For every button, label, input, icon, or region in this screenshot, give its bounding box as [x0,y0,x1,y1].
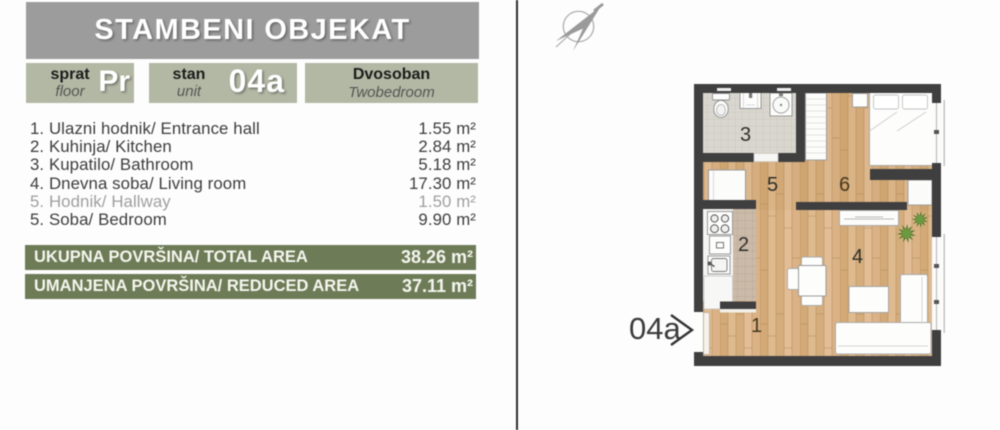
svg-text:6: 6 [839,174,850,196]
svg-text:4: 4 [852,246,863,268]
svg-text:5: 5 [767,174,778,196]
svg-text:2: 2 [738,234,749,256]
svg-text:1: 1 [751,315,762,337]
svg-text:3: 3 [740,124,751,146]
